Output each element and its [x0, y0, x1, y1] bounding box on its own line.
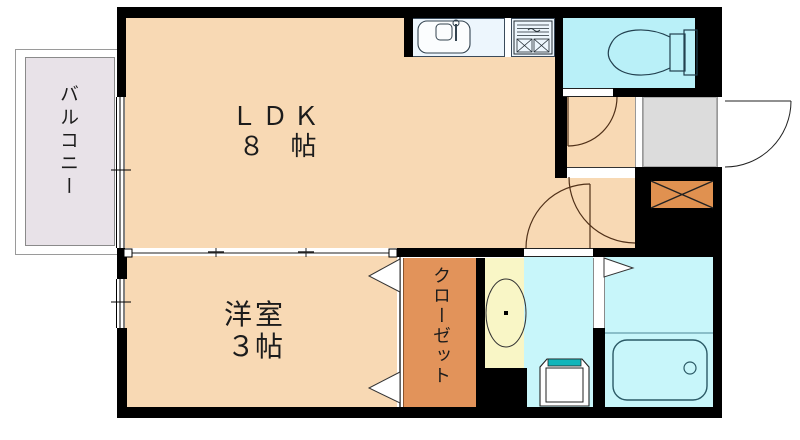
- shoe-cabinet-x-icon: [648, 178, 716, 211]
- hall-anteroom: [567, 97, 635, 167]
- western-size: ３帖: [200, 331, 310, 363]
- washroom-door-opening: [524, 248, 593, 257]
- room-ldk-hall: [555, 178, 635, 248]
- entrance-frame-right: [717, 97, 725, 167]
- wall-closet-basin-divider: [476, 258, 485, 407]
- window-western-room: [116, 279, 125, 328]
- wall-below-bathdoor: [593, 328, 605, 407]
- wall-cabinet-left: [635, 178, 648, 211]
- wall-toilet-bottom: [613, 88, 722, 97]
- kitchen-sink-counter: [412, 18, 505, 57]
- wall-kitchen-toilet-b: [555, 97, 567, 178]
- ldk-size: ８ 帖: [210, 132, 345, 162]
- balcony-label: バルコニー: [55, 84, 82, 199]
- wall-bath-top: [593, 248, 722, 257]
- entrance-genkan: [643, 97, 717, 167]
- toilet-door-opening: [563, 88, 613, 97]
- floorplan: バルコニー ＬＤＫ ８ 帖 洋室 ３帖 クローゼット: [0, 0, 800, 440]
- wall-right-top-block: [695, 7, 722, 97]
- window-ldk-west: [116, 97, 125, 248]
- wall-left-upper: [117, 7, 126, 97]
- entrance-door-swing-icon: [725, 101, 791, 167]
- closet-label: クローゼット: [427, 266, 453, 386]
- wall-closet-top: [397, 248, 524, 257]
- room-washroom: [524, 257, 593, 408]
- room-bath: [605, 257, 713, 408]
- bath-door-frame: [593, 258, 605, 328]
- entrance-frame-left: [635, 97, 643, 167]
- wall-bottom: [117, 407, 722, 418]
- kitchen-counter-gap: [505, 18, 511, 57]
- western-room-label: 洋室 ３帖: [200, 299, 310, 363]
- wall-kitchen-stub: [404, 18, 413, 57]
- anteroom-opening: [567, 167, 635, 178]
- wall-below-basin: [485, 368, 527, 407]
- ldk-label: ＬＤＫ ８ 帖: [210, 102, 345, 162]
- kitchen-stove-counter: [511, 18, 555, 57]
- washbasin-area: [485, 258, 527, 368]
- western-name: 洋室: [200, 299, 310, 331]
- wall-top: [117, 7, 722, 18]
- room-toilet: [563, 18, 695, 88]
- wall-below-entrance: [635, 167, 722, 178]
- wall-left-lower: [117, 328, 127, 418]
- ldk-name: ＬＤＫ: [210, 102, 345, 132]
- wall-kitchen-toilet-a: [555, 18, 563, 97]
- ldk-western-partition: [125, 248, 397, 256]
